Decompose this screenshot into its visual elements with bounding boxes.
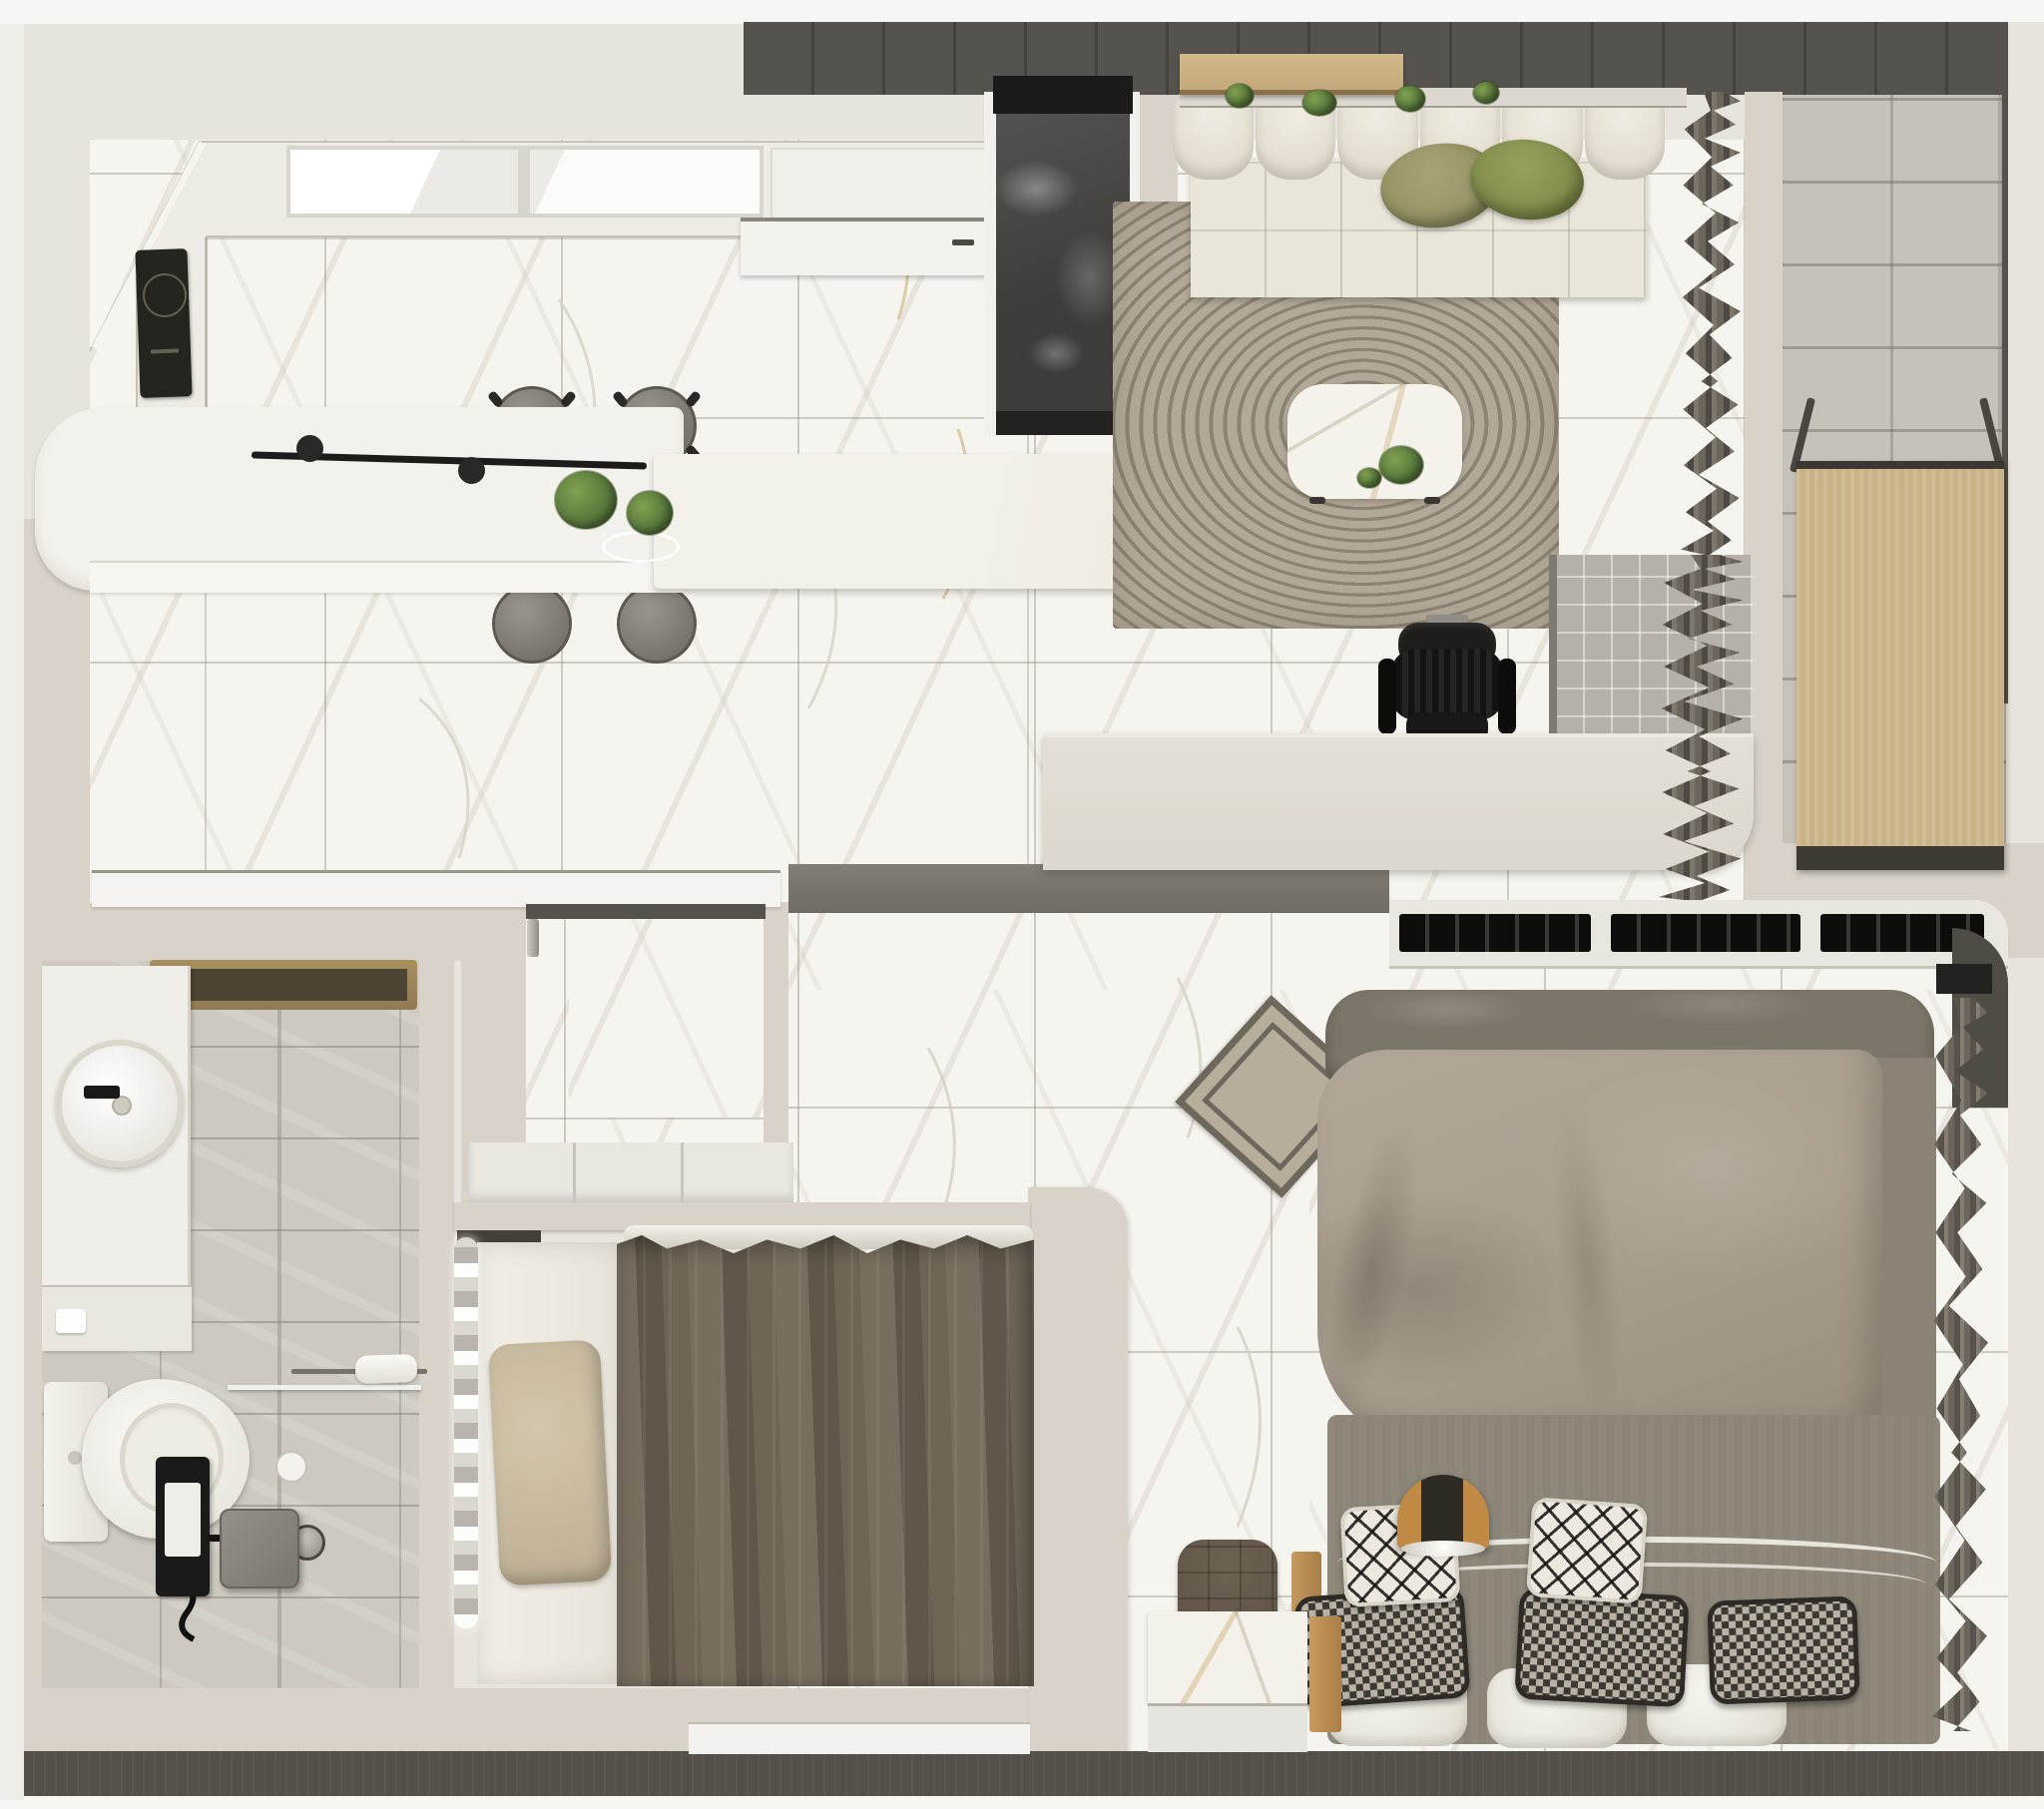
shelf-plant bbox=[1395, 86, 1425, 112]
ac-grille-1 bbox=[1399, 914, 1591, 952]
toilet-flush-button bbox=[68, 1451, 82, 1465]
wall-master-curved-partition bbox=[1028, 1187, 1128, 1754]
wall-bathroom-left bbox=[24, 960, 42, 1688]
dining-stool-bottom-left bbox=[492, 584, 572, 664]
sofa bbox=[1173, 88, 1665, 304]
corridor-door-rail bbox=[526, 904, 766, 919]
kitchen-window bbox=[286, 146, 764, 218]
coffee-table bbox=[1287, 384, 1462, 499]
vanity-counter-marble bbox=[1148, 1611, 1307, 1703]
toilet-paper-holder bbox=[56, 1309, 86, 1333]
entry-panel-threshold bbox=[996, 411, 1130, 435]
houndstooth-pillow bbox=[1707, 1595, 1860, 1704]
shower-glass-partition bbox=[228, 1385, 421, 1390]
bedroom2-pillow bbox=[488, 1339, 613, 1586]
induction-cooktop bbox=[135, 248, 192, 398]
shower-stool bbox=[220, 1509, 299, 1588]
vanity-drawer bbox=[1148, 1703, 1307, 1752]
entry-panel-frame-left bbox=[984, 92, 996, 437]
window-mullion bbox=[518, 150, 530, 214]
bedroom2-led-strip bbox=[454, 1237, 478, 1628]
entry-glass-panel bbox=[996, 114, 1130, 413]
office-chair bbox=[1382, 615, 1512, 742]
shelf-plant bbox=[1302, 90, 1336, 116]
kitchen-island-front-lip bbox=[90, 561, 689, 593]
balcony-wood-table bbox=[1796, 461, 2004, 870]
sink-drain bbox=[112, 1096, 132, 1116]
dining-table-marble bbox=[654, 454, 1190, 589]
coffee-table-foot bbox=[1309, 497, 1325, 504]
floor-drain bbox=[275, 1451, 307, 1483]
dining-stool-bottom-right bbox=[617, 584, 697, 664]
chair-backrest bbox=[1390, 649, 1504, 720]
entry-panel-lintel bbox=[993, 76, 1133, 114]
houndstooth-pillow bbox=[1514, 1587, 1690, 1708]
table-plant-bowl bbox=[602, 531, 680, 563]
island-faucet-right bbox=[458, 457, 485, 484]
chair-armrest-left bbox=[1378, 659, 1396, 734]
shelf-plant bbox=[1226, 84, 1254, 108]
wall-bathroom-bedroom2-divider bbox=[419, 960, 454, 1688]
table-plant-large bbox=[555, 471, 617, 529]
table-plant-small bbox=[627, 491, 673, 535]
sliding-door-track bbox=[92, 870, 780, 907]
wall-mid-over-bathroom bbox=[24, 903, 461, 961]
argyle-pillow bbox=[1526, 1497, 1649, 1604]
lamp-rim bbox=[1401, 1541, 1485, 1557]
towel-on-bar bbox=[355, 1354, 418, 1384]
wood-wall-shelf bbox=[1180, 54, 1403, 95]
curtain-bracket bbox=[1936, 964, 1992, 994]
wall-master-top-dark-band bbox=[788, 864, 1389, 913]
radiator-inner bbox=[160, 969, 407, 1001]
mixer-screen bbox=[165, 1483, 201, 1557]
wall-bottom-dark bbox=[24, 1751, 2044, 1796]
ac-grille-2 bbox=[1611, 914, 1800, 952]
coffee-table-plant-sprig bbox=[1357, 468, 1381, 488]
cooktop-controls bbox=[151, 348, 179, 353]
vanity-side-wood bbox=[1309, 1616, 1341, 1732]
wardrobe-seam bbox=[573, 1142, 576, 1202]
chair-top-bar bbox=[1426, 615, 1468, 623]
curved-desk-console bbox=[1043, 733, 1754, 870]
shelf-plant bbox=[1473, 82, 1499, 104]
sink-faucet bbox=[84, 1086, 120, 1099]
bedroom2-blanket-curtain bbox=[617, 1235, 1034, 1686]
coffee-table-plant bbox=[1379, 446, 1423, 484]
bedroom2-wardrobe-band bbox=[469, 1142, 793, 1202]
entry-console-cabinet bbox=[741, 218, 988, 275]
coffee-table-foot bbox=[1424, 497, 1440, 504]
chair-armrest-right bbox=[1498, 659, 1516, 734]
island-faucet-left bbox=[296, 435, 323, 462]
wardrobe-seam bbox=[681, 1142, 684, 1202]
floor-plan-canvas bbox=[0, 0, 2044, 1809]
cooktop-burner-ring bbox=[142, 272, 188, 318]
console-handle bbox=[952, 239, 974, 245]
bedroom2-door-threshold bbox=[689, 1722, 1030, 1754]
corridor-door-handle bbox=[527, 919, 539, 957]
ac-vent-band bbox=[1389, 900, 2008, 969]
vessel-sink bbox=[56, 1040, 184, 1167]
shower-mixer bbox=[156, 1457, 210, 1596]
